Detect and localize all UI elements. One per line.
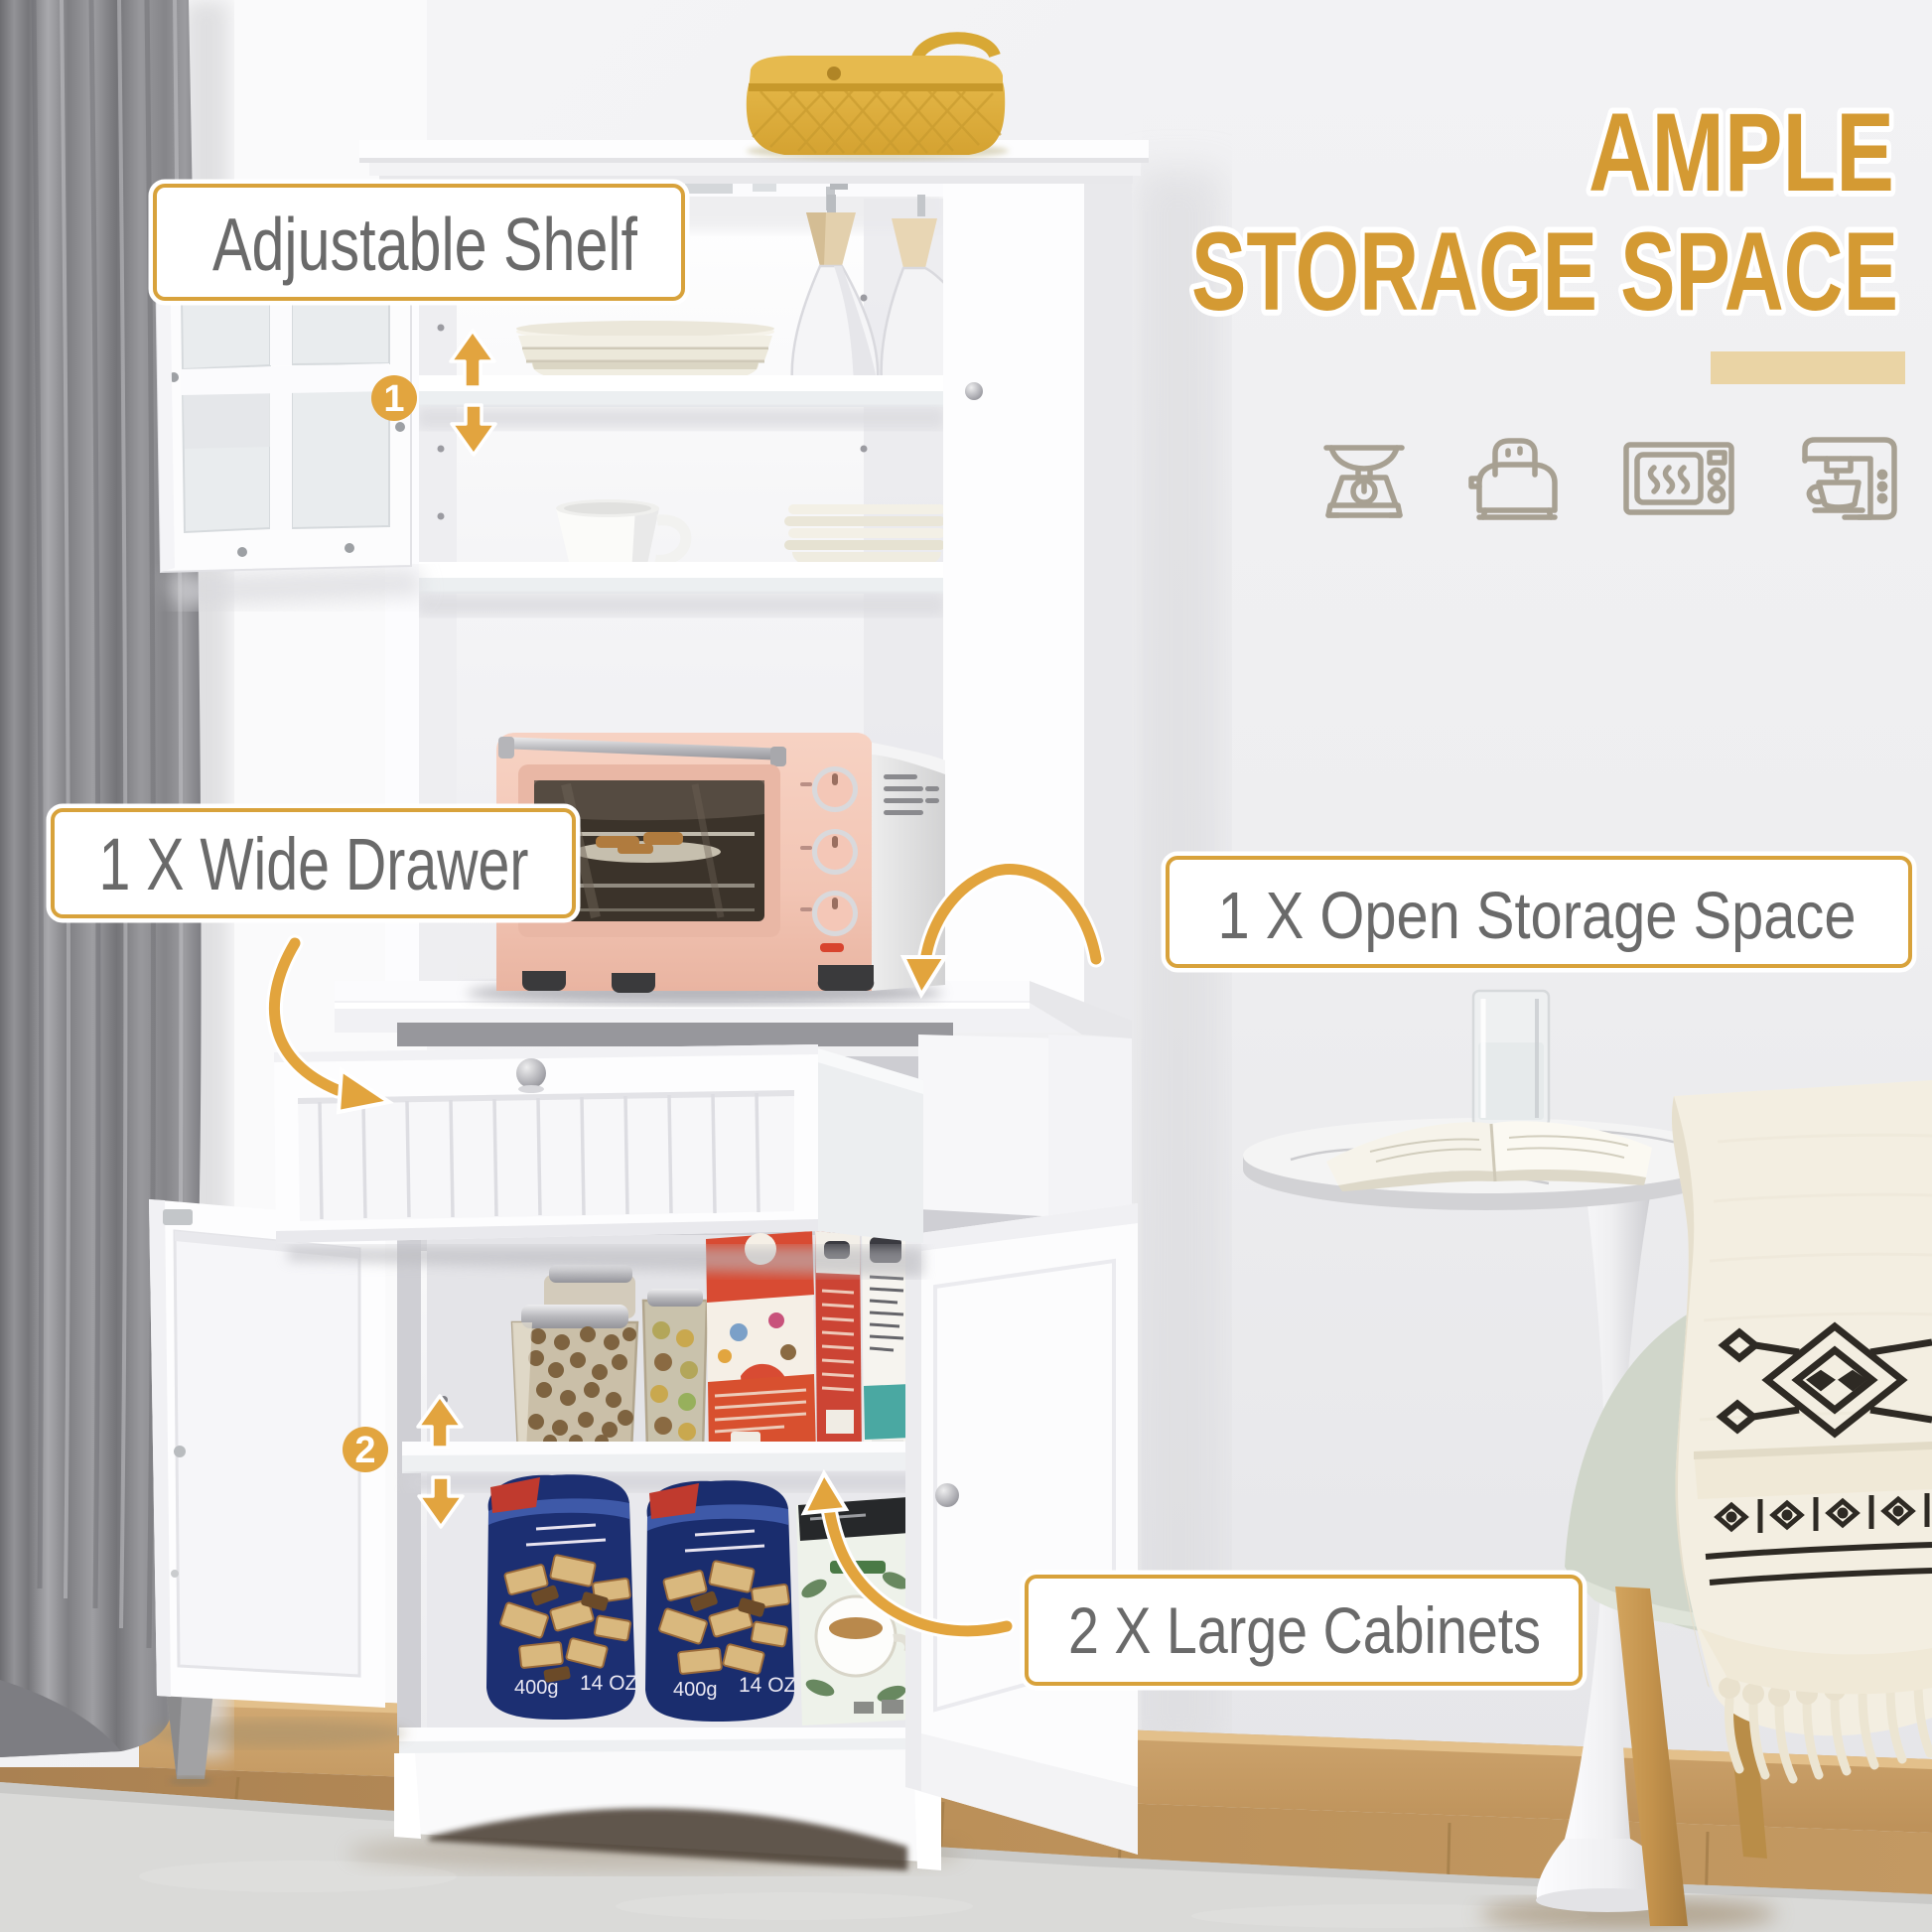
svg-text:STORAGE SPACE: STORAGE SPACE [1191, 209, 1898, 334]
svg-text:400g: 400g [673, 1679, 718, 1701]
svg-text:400g: 400g [514, 1677, 559, 1699]
svg-text:1 X Open Storage Space: 1 X Open Storage Space [1218, 879, 1857, 953]
svg-text:2 X Large Cabinets: 2 X Large Cabinets [1068, 1593, 1541, 1667]
svg-text:Adjustable Shelf: Adjustable Shelf [212, 203, 637, 286]
svg-text:14 OZ: 14 OZ [580, 1672, 638, 1695]
svg-text:AMPLE: AMPLE [1588, 90, 1894, 214]
svg-text:2: 2 [354, 1430, 375, 1471]
svg-text:1: 1 [383, 378, 404, 420]
svg-text:14 OZ: 14 OZ [739, 1674, 797, 1697]
svg-text:1 X Wide Drawer: 1 X Wide Drawer [99, 823, 529, 905]
